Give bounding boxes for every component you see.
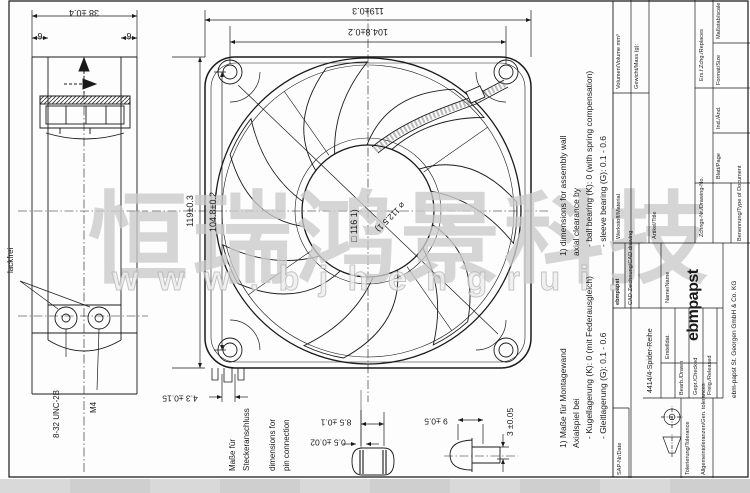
tb-company: ebm-papst St. Georgen GmbH & Co. KG xyxy=(731,281,738,398)
fan-blades xyxy=(223,62,517,358)
tb-released-label: Freig./Released xyxy=(707,356,713,396)
dim-hole-spacing-h: 104.8±0.2 xyxy=(328,26,408,36)
pin-connection-label-de: Maße für Steckeranschluss xyxy=(226,363,255,471)
ebmpapst-logo: ebmpapst xyxy=(685,269,703,341)
tb-tolerance-label: Tolerierung/Tolerance xyxy=(685,422,691,475)
tb-doc-type-value: CAD-Zeichnung/CAD drawing xyxy=(628,231,634,305)
screw-head-detail xyxy=(450,438,500,472)
tb-material-label: Werkstoff/Material xyxy=(616,194,622,239)
tb-doc-type-label: Benennung/Type of Document xyxy=(737,165,743,241)
dim-flange-right: 6 xyxy=(120,30,138,40)
tb-drawn-label: Bearb./Drawn xyxy=(679,361,685,395)
dim-connector-offset: 4.3 ±0.15 xyxy=(150,393,210,402)
dim-flange-left: 6 xyxy=(31,30,49,40)
dim-depth: 38 ±0.4 xyxy=(50,7,118,17)
tb-page-label: Blatt/Page xyxy=(716,153,722,179)
pin-connection-detail xyxy=(352,390,394,475)
tb-scale-label: Maßstab/scale xyxy=(716,3,722,39)
dim-screw-head-height: 3 ±0.05 xyxy=(506,397,515,447)
tb-index-label: Ind./Änd. xyxy=(716,107,722,129)
dim-width: 119±0.3 xyxy=(332,5,404,15)
label-paint-free: lackfrei xyxy=(7,227,16,273)
label-thread-m4: M4 xyxy=(90,389,99,413)
tb-sap-label: SAP-Nr/Date xyxy=(617,443,623,475)
bottom-strip xyxy=(0,479,750,493)
dim-height: 119±0.3 xyxy=(186,176,196,246)
title-block: SAP-Nr/Date ebmpapst CAD-Zeichnung/CAD d… xyxy=(613,0,750,493)
tb-replaces-label: Ers.f.Zchg./Replaces xyxy=(699,29,705,81)
tb-created-label: Erstelldat. xyxy=(665,334,671,359)
tb-gen-tolerance-label: Allgemeintoleranzen/Gen. tolerances xyxy=(701,383,707,475)
dim-pin-thickness: 0.5 ±0.02 xyxy=(300,437,356,446)
dim-hole-spacing-v: 104.8±0.2 xyxy=(209,172,219,252)
dim-screw-head-dia: 9 ±0.5 xyxy=(410,416,462,425)
tb-checked-label: Gepr./Checked xyxy=(693,358,699,395)
tb-mass-label: Gewicht/Mass (g): xyxy=(634,44,640,89)
tb-brand-small: ebmpapst xyxy=(615,279,621,305)
tb-drawing-no-label: Zchngs-Nr./Drawing-No. xyxy=(699,177,705,237)
tb-series-value: 4414/4-Spider-Reihe xyxy=(647,328,655,393)
tb-article-label: Artikel/Title xyxy=(652,212,658,239)
dim-square-opening: □ 116 1) xyxy=(350,180,360,242)
pin-connection-label-en: dimensions for pin connection xyxy=(266,363,295,471)
fan-side-view xyxy=(20,57,137,394)
dim-pin-spacing: 8.5 ±0.1 xyxy=(310,417,362,426)
label-thread-unc: 8-32 UNC-2B xyxy=(53,358,62,438)
tb-volume-label: Volumen/Volume mm³ xyxy=(616,34,622,89)
note-english: 1) dimensions for assembly wall axial cl… xyxy=(557,6,610,256)
note-german: 1) Maße für Montagewand Axialspiel bei -… xyxy=(557,252,610,448)
tb-format-label: Format/Size xyxy=(716,55,722,85)
tb-name-label: Name/Name xyxy=(665,272,671,303)
drawing-sheet: 恒瑞鸿景科技 w w w . b j h e n g r u i . 38 ±0… xyxy=(0,0,750,493)
